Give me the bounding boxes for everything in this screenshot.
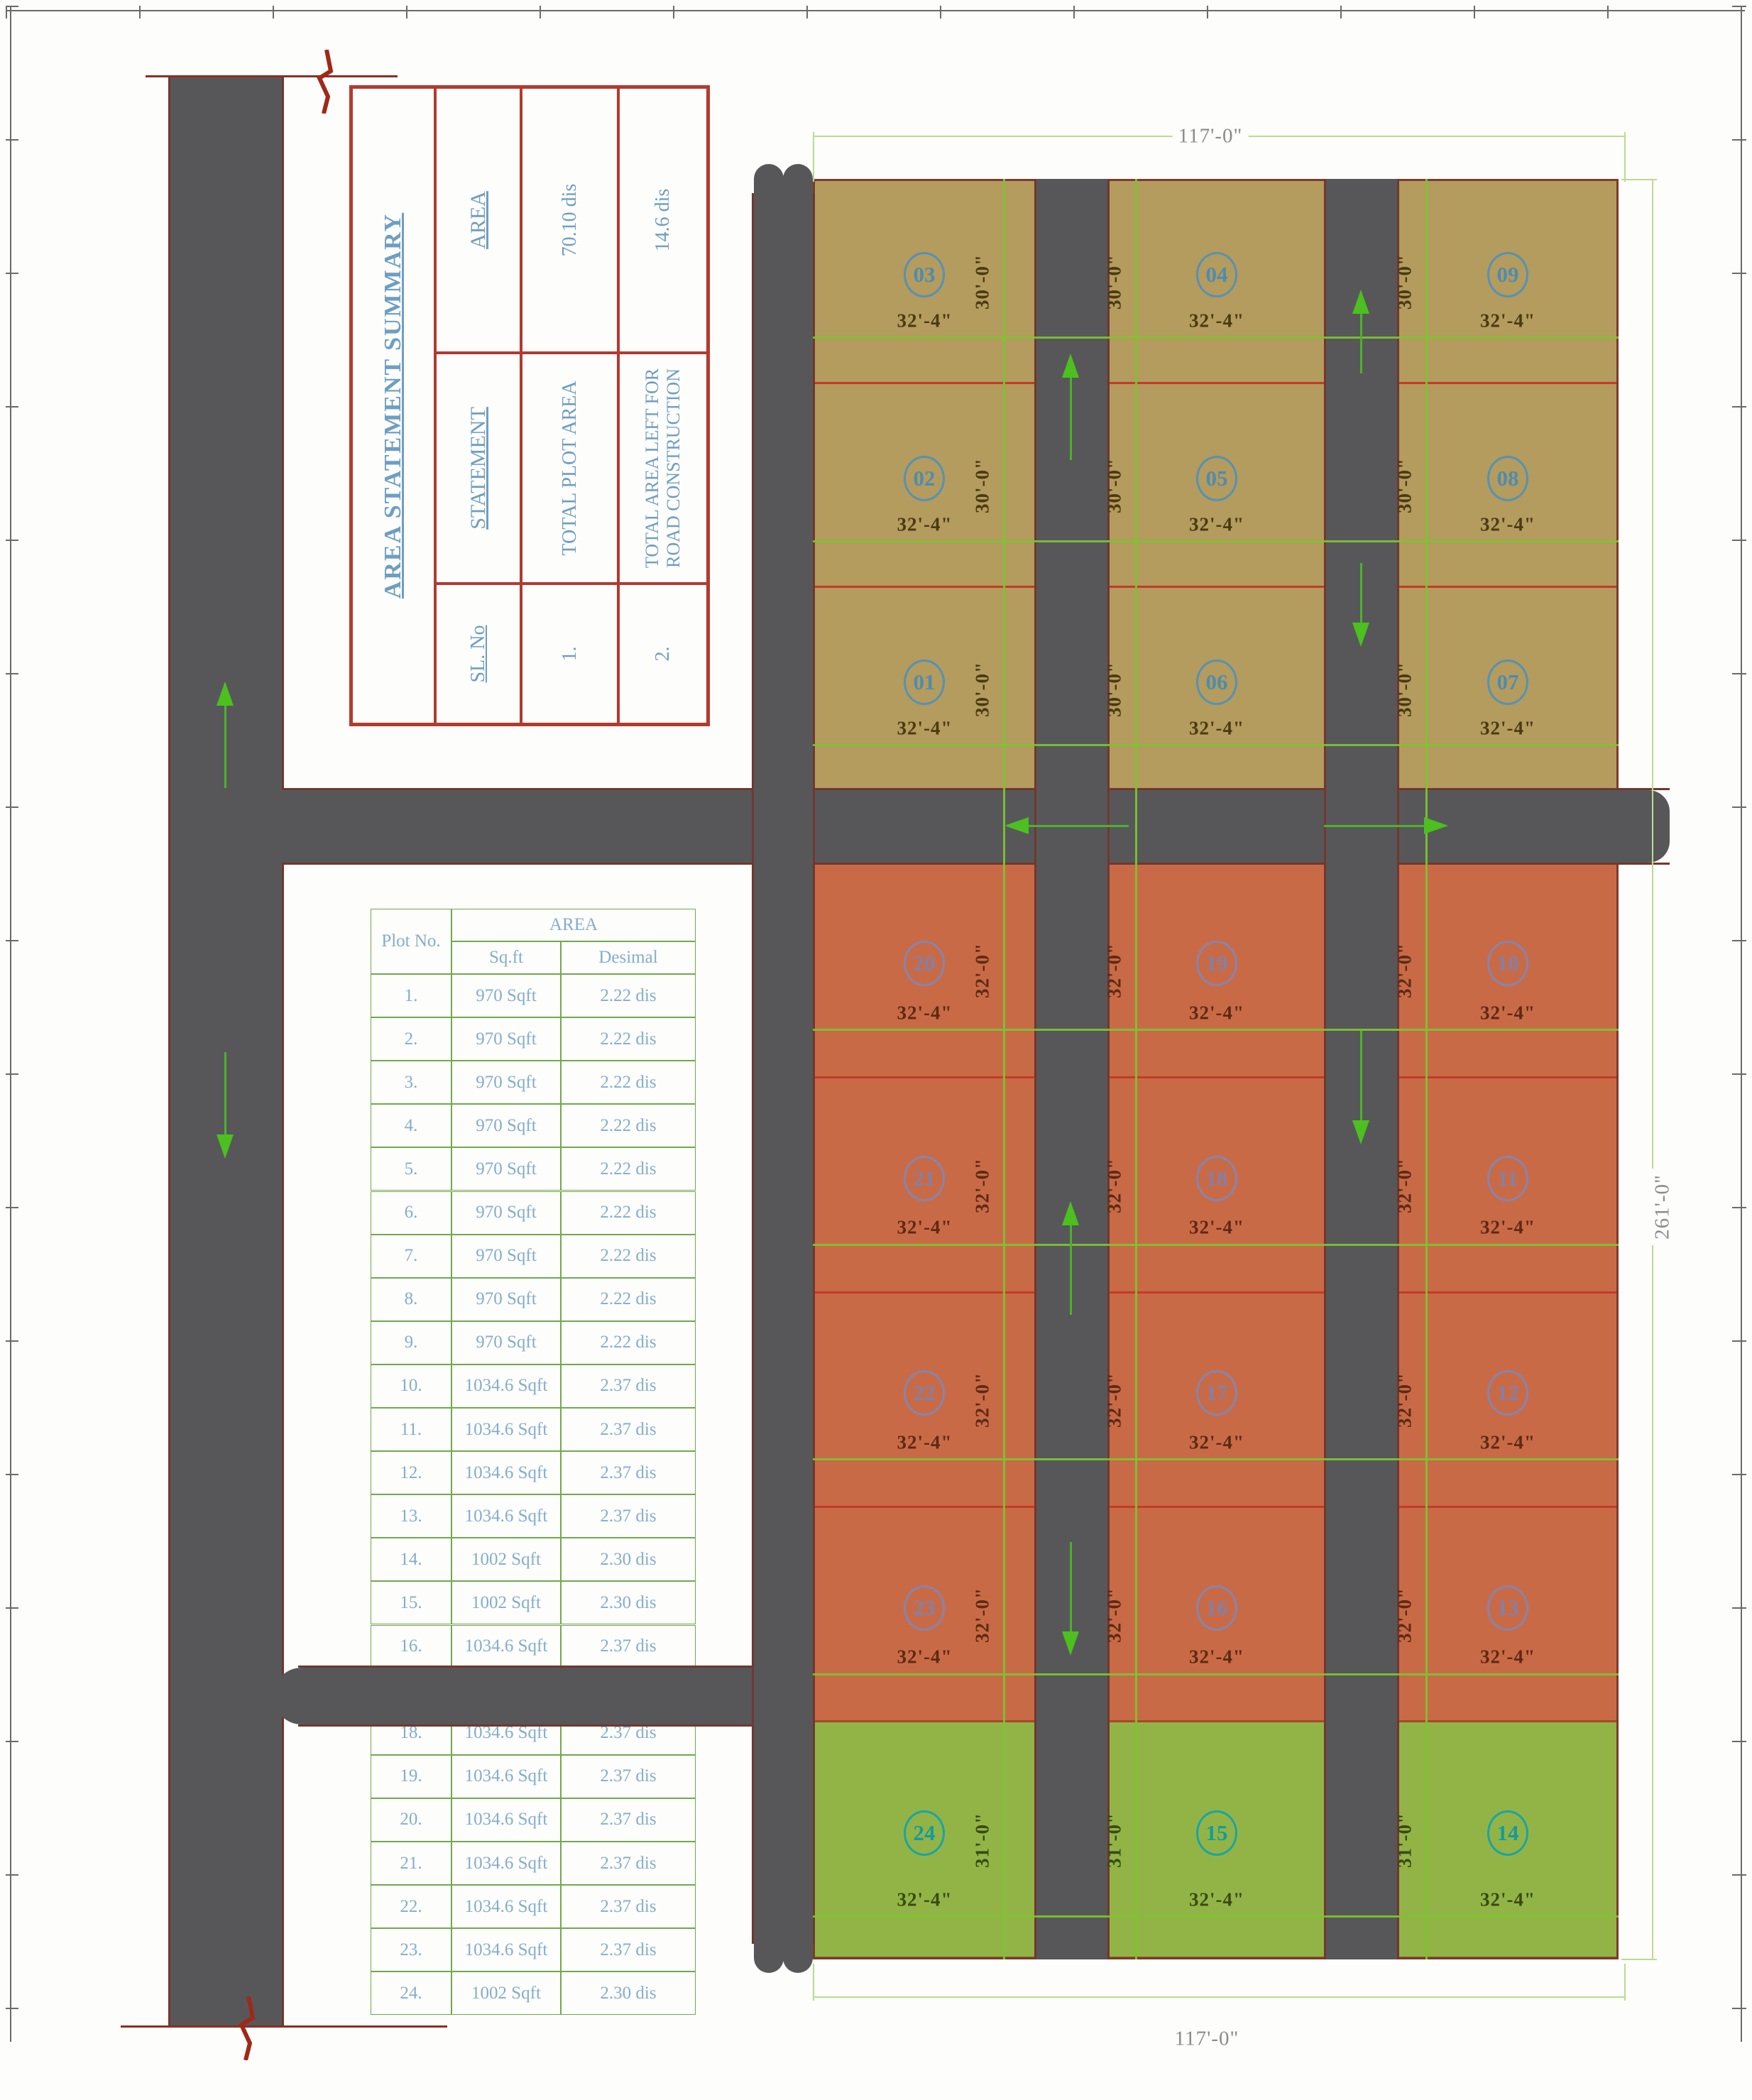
dim-ext bbox=[1621, 1959, 1657, 1960]
plot-table-row-desimal: 2.30 dis bbox=[561, 1972, 696, 2015]
plot-width-dim-label: 32'-4" bbox=[897, 310, 953, 332]
road-spine-edge bbox=[752, 193, 754, 1944]
plot-table-row-desimal: 2.30 dis bbox=[561, 1581, 696, 1624]
frame-tick bbox=[1732, 6, 1746, 7]
road-arrow-stem bbox=[1360, 563, 1362, 625]
frame-tick bbox=[1732, 1073, 1746, 1075]
frame-tick bbox=[6, 1741, 18, 1742]
plot-table-row-desimal: 2.37 dis bbox=[561, 1451, 696, 1494]
frame-tick bbox=[6, 273, 18, 274]
dim-right-label: 261'-0" bbox=[1651, 1169, 1675, 1245]
plot-height-dim-label: 30'-0" bbox=[972, 254, 994, 310]
road-arrow-stem bbox=[224, 1052, 226, 1137]
plot-number-circle: 07 bbox=[1487, 660, 1528, 705]
plot-table-row-sqft: 1034.6 Sqft bbox=[451, 1494, 561, 1538]
plot-number-circle: 08 bbox=[1487, 456, 1528, 501]
plot-width-dim-label: 32'-4" bbox=[1480, 1217, 1535, 1239]
plot-table-row-no: 4. bbox=[371, 1104, 451, 1147]
summary-title: AREA STATEMENT SUMMARY bbox=[351, 87, 435, 724]
road-arrow-up bbox=[217, 682, 234, 706]
plot-height-dim-label: 30'-0" bbox=[1394, 458, 1416, 513]
frame-tick bbox=[1340, 6, 1342, 18]
plot-number-circle: 24 bbox=[904, 1810, 945, 1856]
plot-height-dim-label: 30'-0" bbox=[972, 662, 994, 717]
plot-table-row-no: 1. bbox=[371, 974, 451, 1017]
plot-table-row-desimal: 2.37 dis bbox=[561, 1798, 696, 1842]
plot-height-dim-label: 32'-0" bbox=[972, 1372, 994, 1428]
plot-table-row-no: 3. bbox=[371, 1061, 451, 1104]
road-branch-horizontal bbox=[273, 1668, 813, 1724]
road-mid-edge bbox=[282, 788, 1670, 790]
plot-table-row-no: 2. bbox=[371, 1017, 451, 1061]
area-statement-summary-table: AREA STATEMENT SUMMARY SL. No STATEMENT … bbox=[349, 85, 710, 726]
plot-number-circle: 09 bbox=[1487, 252, 1528, 297]
frame-tick bbox=[139, 6, 141, 18]
plot-dim-vline bbox=[1425, 179, 1428, 1959]
plot-table-row-desimal: 2.37 dis bbox=[561, 1842, 696, 1885]
frame-tick bbox=[1732, 1207, 1746, 1208]
frame-tick bbox=[1732, 1741, 1746, 1742]
road-break-mark-top bbox=[312, 50, 341, 114]
drawing-sheet: AREA STATEMENT SUMMARY SL. No STATEMENT … bbox=[0, 0, 1752, 2100]
dim-bottom-label: 117'-0" bbox=[1169, 2028, 1245, 2051]
plot-width-dim-label: 32'-4" bbox=[1189, 1431, 1244, 1453]
road-arrow-up bbox=[1062, 354, 1079, 378]
road-spine-cap bbox=[754, 164, 784, 194]
plot-height-dim-label: 32'-0" bbox=[972, 1587, 994, 1643]
plot-number-circle: 11 bbox=[1487, 1156, 1528, 1201]
plot-height-dim-label: 32'-0" bbox=[972, 943, 994, 998]
road-arrow-right bbox=[1424, 817, 1448, 834]
plot-width-dim-label: 32'-4" bbox=[1189, 1888, 1244, 1910]
plot-width-dim-label: 32'-4" bbox=[1189, 717, 1244, 739]
plot-number-circle: 04 bbox=[1196, 252, 1237, 297]
plot-number-circle: 03 bbox=[904, 252, 945, 297]
plot-number-circle: 12 bbox=[1487, 1370, 1528, 1416]
plot-table-row-desimal: 2.37 dis bbox=[561, 1494, 696, 1538]
plot-table-row-desimal: 2.22 dis bbox=[561, 974, 696, 1017]
plot-table-row-no: 19. bbox=[371, 1755, 451, 1798]
plot-table-row-no: 21. bbox=[371, 1842, 451, 1885]
frame-tick bbox=[6, 1874, 18, 1876]
frame-tick bbox=[1207, 6, 1208, 18]
road-arrow-stem bbox=[1070, 1542, 1072, 1634]
plot-dim-hline bbox=[813, 1029, 1619, 1031]
sheet-frame-left bbox=[10, 6, 11, 2042]
plot-table-row-sqft: 1034.6 Sqft bbox=[451, 1755, 561, 1798]
plot-table-row-sqft: 1034.6 Sqft bbox=[451, 1798, 561, 1842]
site-bottom-strip bbox=[1397, 1957, 1619, 1959]
plot-table-row-sqft: 970 Sqft bbox=[451, 1278, 561, 1321]
frame-tick bbox=[1732, 406, 1746, 408]
road-edge bbox=[1034, 179, 1036, 1959]
boundary-line-bottom bbox=[121, 2025, 447, 2028]
plot-number-circle: 14 bbox=[1487, 1810, 1528, 1856]
plot-height-dim-label: 32'-0" bbox=[1394, 1587, 1416, 1643]
plot-dim-hline bbox=[813, 1915, 1619, 1918]
plot-number-circle: 06 bbox=[1196, 660, 1237, 705]
plot-dim-hline bbox=[813, 1458, 1619, 1460]
plot-table-header-plotno: Plot No. bbox=[371, 909, 451, 974]
plot-width-dim-label: 32'-4" bbox=[1480, 1002, 1535, 1024]
plot-table-row-desimal: 2.37 dis bbox=[561, 1928, 696, 1972]
plot-width-dim-label: 32'-4" bbox=[897, 717, 953, 739]
plot-height-dim-label: 32'-0" bbox=[1394, 1372, 1416, 1428]
plot-height-dim-label: 30'-0" bbox=[1104, 254, 1126, 310]
plot-table-row-sqft: 1034.6 Sqft bbox=[451, 1451, 561, 1494]
plot-table-row-no: 6. bbox=[371, 1191, 451, 1235]
plot-row-separator bbox=[1397, 1076, 1619, 1078]
road-arrow-down bbox=[1352, 623, 1369, 647]
sheet-frame-right bbox=[1741, 6, 1742, 2042]
plot-table-row-sqft: 970 Sqft bbox=[451, 974, 561, 1017]
frame-tick bbox=[1732, 273, 1746, 274]
plot-table-row-sqft: 970 Sqft bbox=[451, 1147, 561, 1191]
plot-row-separator bbox=[1107, 1506, 1326, 1508]
plot-number-circle: 13 bbox=[1487, 1585, 1528, 1631]
road-arrow-stem bbox=[1324, 825, 1427, 827]
frame-tick bbox=[6, 6, 18, 7]
frame-tick bbox=[1732, 139, 1746, 141]
frame-tick bbox=[6, 1207, 18, 1208]
plot-number-circle: 21 bbox=[904, 1156, 945, 1201]
plot-dim-hline bbox=[813, 744, 1619, 746]
plot-width-dim-label: 32'-4" bbox=[1480, 1431, 1535, 1453]
road-branch-edge bbox=[298, 1724, 813, 1727]
dim-ext bbox=[813, 1964, 814, 2001]
frame-tick bbox=[6, 406, 18, 408]
dim-line-bottom bbox=[813, 1996, 1626, 1998]
road-branch-edge bbox=[298, 1666, 813, 1668]
summary-row-sl: 2. bbox=[618, 584, 708, 724]
frame-tick bbox=[6, 673, 18, 674]
summary-row-area: 14.6 dis bbox=[618, 87, 708, 353]
plot-width-dim-label: 32'-4" bbox=[1189, 1002, 1244, 1024]
plot-table-row-no: 7. bbox=[371, 1235, 451, 1278]
plot-height-dim-label: 31'-0" bbox=[972, 1812, 994, 1868]
plot-row-separator bbox=[1107, 1291, 1326, 1294]
plot-dim-hline bbox=[813, 1244, 1619, 1246]
frame-tick bbox=[6, 806, 18, 808]
plot-table-row-desimal: 2.37 dis bbox=[561, 1365, 696, 1408]
frame-tick bbox=[1732, 1607, 1746, 1609]
road-edge bbox=[1397, 179, 1399, 1959]
plot-height-dim-label: 32'-0" bbox=[1394, 943, 1416, 998]
plot-dim-vline bbox=[1003, 179, 1005, 1959]
road-arrow-stem bbox=[1070, 375, 1072, 460]
plot-height-dim-label: 32'-0" bbox=[1104, 1158, 1126, 1213]
plot-width-dim-label: 32'-4" bbox=[1480, 310, 1535, 332]
plot-table-row-no: 10. bbox=[371, 1365, 451, 1408]
frame-tick bbox=[6, 6, 7, 18]
plot-width-dim-label: 32'-4" bbox=[1480, 1888, 1535, 1910]
frame-tick bbox=[6, 1073, 18, 1075]
plot-table-row-no: 9. bbox=[371, 1321, 451, 1365]
plot-width-dim-label: 32'-4" bbox=[897, 1646, 953, 1668]
plot-table-row-no: 16. bbox=[371, 1625, 451, 1668]
plot-height-dim-label: 31'-0" bbox=[1394, 1812, 1416, 1868]
plot-table-row-desimal: 2.37 dis bbox=[561, 1755, 696, 1798]
plot-width-dim-label: 32'-4" bbox=[1189, 1217, 1244, 1239]
plot-width-dim-label: 32'-4" bbox=[897, 1002, 953, 1024]
plot-table-row-desimal: 2.30 dis bbox=[561, 1538, 696, 1581]
plot-table-header-area: AREA bbox=[451, 909, 696, 941]
plot-table-row-desimal: 2.22 dis bbox=[561, 1104, 696, 1147]
plot-width-dim-label: 32'-4" bbox=[1480, 513, 1535, 535]
dim-ext bbox=[1621, 179, 1657, 180]
plot-width-dim-label: 32'-4" bbox=[897, 1888, 953, 1910]
plot-table-row-no: 14. bbox=[371, 1538, 451, 1581]
plot-table-row-no: 5. bbox=[371, 1147, 451, 1191]
plot-table-header-desimal: Desimal bbox=[561, 941, 696, 974]
road-edge bbox=[1324, 179, 1326, 1959]
plot-table-row-sqft: 970 Sqft bbox=[451, 1017, 561, 1061]
frame-tick bbox=[673, 6, 674, 18]
plot-number-circle: 15 bbox=[1196, 1810, 1237, 1856]
plot-height-dim-label: 30'-0" bbox=[1104, 662, 1126, 717]
plot-number-circle: 10 bbox=[1487, 941, 1528, 986]
summary-header-area: AREA bbox=[435, 87, 521, 353]
plot-table-row-no: 20. bbox=[371, 1798, 451, 1842]
road-arrow-stem bbox=[1360, 1031, 1362, 1123]
frame-tick bbox=[1607, 6, 1609, 18]
plot-number-circle: 22 bbox=[904, 1370, 945, 1416]
plot-table-row-sqft: 1034.6 Sqft bbox=[451, 1885, 561, 1928]
plot-table-row-no: 11. bbox=[371, 1408, 451, 1451]
plot-dim-vline bbox=[1135, 179, 1137, 1959]
plot-width-dim-label: 32'-4" bbox=[1480, 717, 1535, 739]
plot-table-row-desimal: 2.22 dis bbox=[561, 1147, 696, 1191]
plot-dim-hline bbox=[813, 540, 1619, 542]
road-arrow-stem bbox=[1070, 1223, 1072, 1315]
plot-table-row-no: 24. bbox=[371, 1972, 451, 2015]
plot-table-row-sqft: 1034.6 Sqft bbox=[451, 1928, 561, 1972]
plot-row-separator bbox=[1397, 1291, 1619, 1294]
summary-header-slno: SL. No bbox=[435, 584, 521, 724]
plot-dim-hline bbox=[813, 1673, 1619, 1675]
road-spine-cap bbox=[783, 1943, 813, 1973]
frame-tick bbox=[6, 1607, 18, 1609]
plot-table-row-sqft: 1034.6 Sqft bbox=[451, 1625, 561, 1668]
orange-green-boundary bbox=[1107, 1720, 1326, 1722]
frame-tick bbox=[406, 6, 407, 18]
plot-height-dim-label: 30'-0" bbox=[1394, 254, 1416, 310]
plot-row-separator bbox=[1107, 586, 1326, 588]
plot-table-row-sqft: 1002 Sqft bbox=[451, 1581, 561, 1624]
frame-tick bbox=[6, 1340, 18, 1342]
plot-row-separator bbox=[1107, 382, 1326, 384]
dim-ext bbox=[1624, 1964, 1626, 2001]
plot-height-dim-label: 30'-0" bbox=[1394, 662, 1416, 717]
plot-height-dim-label: 32'-0" bbox=[1394, 1158, 1416, 1213]
plot-width-dim-label: 32'-4" bbox=[897, 1217, 953, 1239]
plot-number-circle: 01 bbox=[904, 660, 945, 705]
frame-tick bbox=[1073, 6, 1075, 18]
dim-ext bbox=[1624, 132, 1626, 182]
dim-line-right bbox=[1652, 179, 1653, 1959]
frame-tick bbox=[540, 6, 541, 18]
plot-table-row-desimal: 2.37 dis bbox=[561, 1885, 696, 1928]
plot-number-circle: 19 bbox=[1196, 941, 1237, 986]
frame-tick bbox=[6, 139, 18, 141]
plot-table-row-sqft: 1002 Sqft bbox=[451, 1538, 561, 1581]
plot-height-dim-label: 32'-0" bbox=[1104, 1587, 1126, 1643]
plot-height-dim-label: 32'-0" bbox=[1104, 943, 1126, 998]
dim-top-label: 117'-0" bbox=[1173, 125, 1249, 148]
plot-height-dim-label: 32'-0" bbox=[972, 1158, 994, 1213]
plot-row-separator bbox=[1397, 1506, 1619, 1508]
frame-tick bbox=[1732, 940, 1746, 941]
boundary-line-top bbox=[146, 75, 398, 77]
road-mid-horizontal bbox=[282, 790, 1670, 863]
plot-table-row-no: 13. bbox=[371, 1494, 451, 1538]
road-arrow-stem bbox=[1360, 311, 1362, 373]
plot-table-row-sqft: 970 Sqft bbox=[451, 1235, 561, 1278]
road-arrow-stem bbox=[224, 703, 226, 788]
road-spine-edge bbox=[813, 193, 815, 1944]
road-mid-edge bbox=[282, 863, 1670, 865]
frame-tick bbox=[6, 540, 18, 541]
plot-table-row-desimal: 2.22 dis bbox=[561, 1061, 696, 1104]
frame-tick bbox=[806, 6, 808, 18]
road-spine-vertical bbox=[754, 179, 813, 1958]
frame-tick bbox=[6, 940, 18, 941]
plot-row-separator bbox=[1107, 1076, 1326, 1078]
frame-tick bbox=[1732, 806, 1746, 808]
frame-tick bbox=[1732, 1340, 1746, 1342]
plot-table-row-sqft: 1034.6 Sqft bbox=[451, 1842, 561, 1885]
plot-table-row-sqft: 1034.6 Sqft bbox=[451, 1408, 561, 1451]
road-arrow-up bbox=[1062, 1201, 1079, 1225]
plot-number-circle: 17 bbox=[1196, 1370, 1237, 1416]
frame-tick bbox=[1732, 2008, 1746, 2009]
plot-table-row-desimal: 2.22 dis bbox=[561, 1235, 696, 1278]
plot-dim-hline bbox=[813, 337, 1619, 339]
plot-table-row-sqft: 1002 Sqft bbox=[451, 1972, 561, 2015]
road-edge bbox=[1107, 179, 1110, 1959]
summary-row-statement: TOTAL PLOT AREA bbox=[521, 353, 618, 584]
frame-tick bbox=[6, 1474, 18, 1475]
road-arrow-down bbox=[1352, 1120, 1369, 1144]
plot-row-separator bbox=[1397, 382, 1619, 384]
summary-row-sl: 1. bbox=[521, 584, 618, 724]
plot-width-dim-label: 32'-4" bbox=[1189, 1646, 1244, 1668]
plot-row-separator bbox=[1397, 586, 1619, 588]
plot-table-row-sqft: 970 Sqft bbox=[451, 1061, 561, 1104]
road-spine-cap bbox=[754, 1943, 784, 1973]
plot-table-row-desimal: 2.22 dis bbox=[561, 1017, 696, 1061]
summary-row-statement: TOTAL AREA LEFT FOR ROAD CONSTRUCTION bbox=[618, 353, 708, 584]
plot-table-row-no: 22. bbox=[371, 1885, 451, 1928]
frame-tick bbox=[1732, 1874, 1746, 1876]
frame-tick bbox=[1732, 1474, 1746, 1475]
plot-number-circle: 05 bbox=[1196, 456, 1237, 501]
plot-table-row-desimal: 2.22 dis bbox=[561, 1321, 696, 1365]
plot-table-row-sqft: 970 Sqft bbox=[451, 1191, 561, 1235]
plot-width-dim-label: 32'-4" bbox=[897, 1431, 953, 1453]
plot-table-header-sqft: Sq.ft bbox=[451, 941, 561, 974]
plot-table-row-sqft: 970 Sqft bbox=[451, 1104, 561, 1147]
plot-height-dim-label: 32'-0" bbox=[1104, 1372, 1126, 1428]
plot-table-row-desimal: 2.37 dis bbox=[561, 1408, 696, 1451]
frame-tick bbox=[273, 6, 274, 18]
sheet-frame-top bbox=[6, 10, 1745, 11]
plot-table-row-sqft: 970 Sqft bbox=[451, 1321, 561, 1365]
plot-table-row-no: 15. bbox=[371, 1581, 451, 1624]
road-left-edge bbox=[282, 77, 284, 2027]
plot-width-dim-label: 32'-4" bbox=[897, 513, 953, 535]
frame-tick bbox=[6, 2008, 18, 2009]
dim-ext bbox=[813, 132, 814, 182]
plot-table-row-desimal: 2.37 dis bbox=[561, 1625, 696, 1668]
plot-height-dim-label: 30'-0" bbox=[1104, 458, 1126, 513]
plot-table-row-desimal: 2.22 dis bbox=[561, 1278, 696, 1321]
road-left-main bbox=[170, 77, 282, 2027]
plot-height-dim-label: 31'-0" bbox=[1104, 1812, 1126, 1868]
road-internal-a bbox=[1036, 179, 1107, 1959]
frame-tick bbox=[1732, 540, 1746, 541]
orange-green-boundary bbox=[1397, 1720, 1619, 1722]
plot-number-circle: 18 bbox=[1196, 1156, 1237, 1201]
plot-table-row-desimal: 2.22 dis bbox=[561, 1191, 696, 1235]
road-arrow-down bbox=[217, 1134, 234, 1159]
frame-tick bbox=[1732, 673, 1746, 674]
road-arrow-up bbox=[1352, 290, 1369, 314]
plot-number-circle: 02 bbox=[904, 456, 945, 501]
plot-width-dim-label: 32'-4" bbox=[1189, 513, 1244, 535]
plot-table-row-no: 23. bbox=[371, 1928, 451, 1972]
frame-tick bbox=[1474, 6, 1475, 18]
site-bottom-strip bbox=[1107, 1957, 1326, 1959]
road-break-mark-bottom bbox=[234, 1996, 263, 2060]
plot-width-dim-label: 32'-4" bbox=[1189, 310, 1244, 332]
summary-header-statement: STATEMENT bbox=[435, 353, 521, 584]
road-arrow-down bbox=[1062, 1631, 1079, 1656]
road-spine-cap bbox=[783, 164, 813, 194]
plot-table-row-no: 8. bbox=[371, 1278, 451, 1321]
road-left-edge bbox=[168, 77, 170, 2027]
frame-tick bbox=[940, 6, 941, 18]
plot-number-circle: 20 bbox=[904, 941, 945, 986]
plot-number-circle: 23 bbox=[904, 1585, 945, 1631]
plot-number-circle: 16 bbox=[1196, 1585, 1237, 1631]
road-arrow-left bbox=[1004, 817, 1029, 834]
plot-width-dim-label: 32'-4" bbox=[1480, 1646, 1535, 1668]
summary-row-area: 70.10 dis bbox=[521, 87, 618, 353]
road-arrow-stem bbox=[1026, 825, 1129, 827]
plot-table-row-no: 12. bbox=[371, 1451, 451, 1494]
plot-height-dim-label: 30'-0" bbox=[972, 458, 994, 513]
plot-table-row-sqft: 1034.6 Sqft bbox=[451, 1365, 561, 1408]
